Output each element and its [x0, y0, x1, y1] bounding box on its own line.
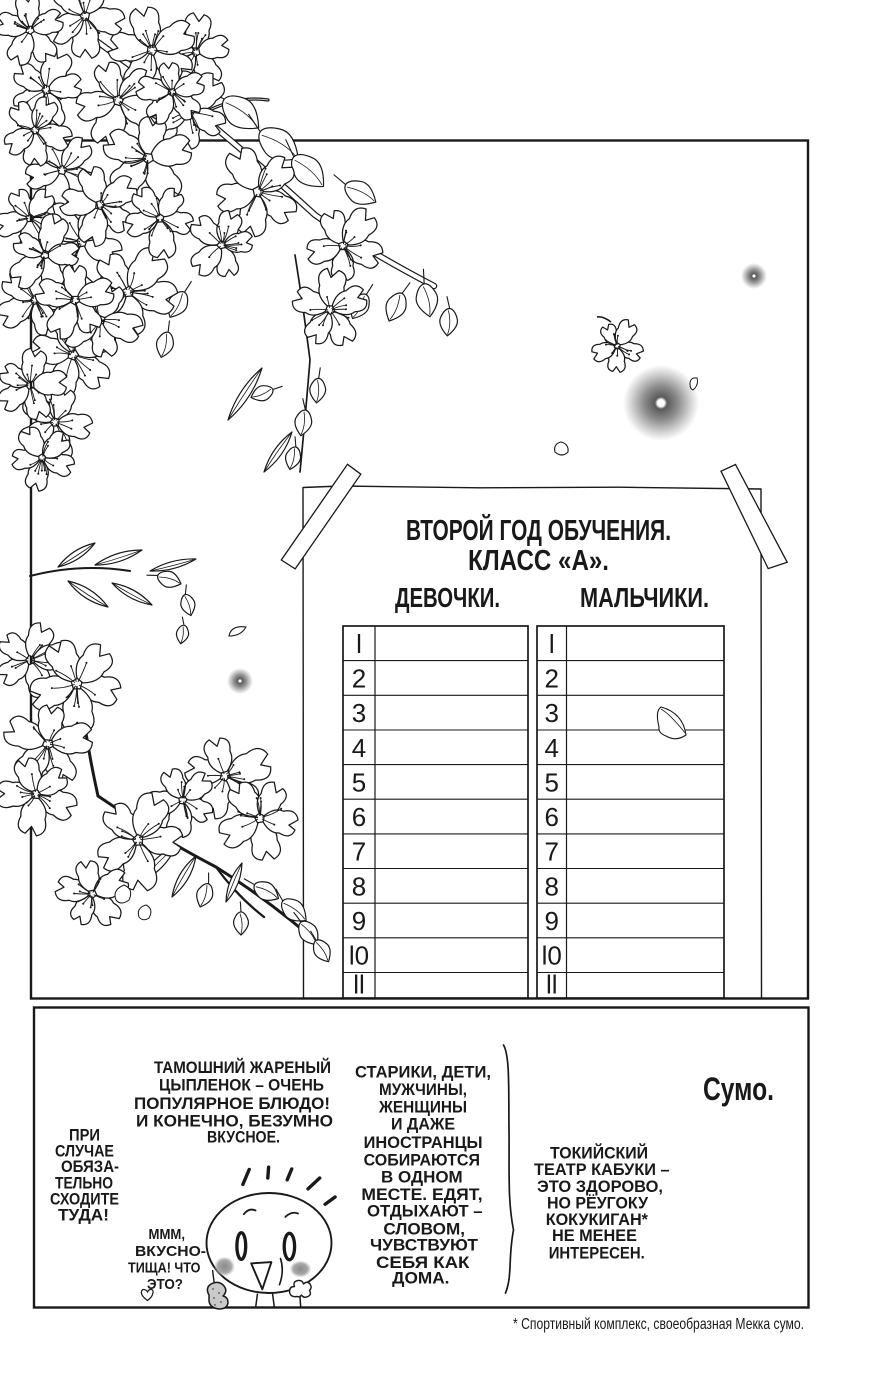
svg-text:l: l: [549, 629, 555, 659]
svg-text:Сумо.: Сумо.: [703, 1071, 774, 1107]
svg-text:6: 6: [352, 802, 366, 832]
svg-text:6: 6: [545, 802, 559, 832]
svg-text:2: 2: [352, 664, 366, 694]
svg-text:СТАРИКИ, ДЕТИ,: СТАРИКИ, ДЕТИ,: [355, 1064, 491, 1082]
svg-text:ТИЩА! ЧТО: ТИЩА! ЧТО: [128, 1260, 201, 1277]
svg-text:4: 4: [352, 733, 366, 763]
svg-text:ТАМОШНИЙ ЖАРЕНЫЙ: ТАМОШНИЙ ЖАРЕНЫЙ: [154, 1058, 331, 1077]
svg-text:ВТОРОЙ ГОД ОБУЧЕНИЯ.: ВТОРОЙ ГОД ОБУЧЕНИЯ.: [406, 513, 671, 547]
svg-text:ЦЫПЛЕНОК – ОЧЕНЬ: ЦЫПЛЕНОК – ОЧЕНЬ: [159, 1077, 324, 1095]
svg-text:ТЕАТР КАБУКИ –: ТЕАТР КАБУКИ –: [534, 1161, 670, 1179]
svg-text:5: 5: [352, 767, 366, 797]
svg-text:ВКУСНО-: ВКУСНО-: [135, 1243, 206, 1260]
svg-text:8: 8: [545, 871, 559, 901]
svg-text:* Спортивный комплекс, своеобр: * Спортивный комплекс, своеобразная Мекк…: [513, 1316, 804, 1333]
svg-text:ЖЕНЩИНЫ: ЖЕНЩИНЫ: [378, 1099, 467, 1117]
svg-text:МУЖЧИНЫ,: МУЖЧИНЫ,: [379, 1081, 467, 1099]
svg-text:ЧУВСТВУЮТ: ЧУВСТВУЮТ: [370, 1237, 478, 1255]
svg-text:9: 9: [545, 906, 559, 936]
svg-text:4: 4: [545, 733, 559, 763]
svg-text:НЕ МЕНЕЕ: НЕ МЕНЕЕ: [552, 1227, 637, 1245]
svg-text:ДОМА.: ДОМА.: [392, 1270, 449, 1288]
svg-text:7: 7: [352, 837, 366, 867]
svg-text:ИНТЕРЕСЕН.: ИНТЕРЕСЕН.: [549, 1244, 645, 1262]
svg-text:ДЕВОЧКИ.: ДЕВОЧКИ.: [395, 582, 500, 613]
svg-text:МАЛЬЧИКИ.: МАЛЬЧИКИ.: [580, 582, 709, 613]
svg-text:И КОНЕЧНО, БЕЗУМНО: И КОНЕЧНО, БЕЗУМНО: [136, 1112, 333, 1130]
svg-text:9: 9: [352, 906, 366, 936]
svg-text:l: l: [356, 629, 362, 659]
svg-text:5: 5: [545, 767, 559, 797]
svg-text:ТОКИЙСКИЙ: ТОКИЙСКИЙ: [550, 1143, 648, 1162]
svg-text:7: 7: [545, 837, 559, 867]
svg-text:МЕСТЕ. ЕДЯТ,: МЕСТЕ. ЕДЯТ,: [361, 1186, 482, 1204]
svg-text:ТЕЛЬНО: ТЕЛЬНО: [55, 1174, 113, 1192]
svg-text:НО РЁУГОКУ: НО РЁУГОКУ: [547, 1194, 649, 1212]
svg-text:ПРИ: ПРИ: [69, 1126, 100, 1144]
svg-text:ОБЯЗА-: ОБЯЗА-: [61, 1158, 119, 1176]
svg-text:СОБИРАЮТСЯ: СОБИРАЮТСЯ: [364, 1152, 480, 1170]
svg-text:В ОДНОМ: В ОДНОМ: [381, 1168, 463, 1186]
svg-text:2: 2: [545, 664, 559, 694]
svg-text:3: 3: [352, 698, 366, 728]
svg-text:ВКУСНОЕ.: ВКУСНОЕ.: [207, 1129, 280, 1147]
svg-text:КЛАСС «А».: КЛАСС «А».: [468, 545, 609, 577]
svg-text:ИНОСТРАНЦЫ: ИНОСТРАНЦЫ: [364, 1134, 483, 1152]
svg-text:ll: ll: [353, 970, 365, 1000]
svg-text:И ДАЖЕ: И ДАЖЕ: [391, 1116, 455, 1134]
svg-text:l0: l0: [542, 941, 562, 971]
svg-text:ПОПУЛЯРНОЕ БЛЮДО!: ПОПУЛЯРНОЕ БЛЮДО!: [134, 1095, 330, 1113]
svg-text:МММ,: МММ,: [149, 1226, 186, 1243]
svg-text:ОТДЫХАЮТ –: ОТДЫХАЮТ –: [367, 1202, 483, 1220]
svg-text:l0: l0: [349, 941, 369, 971]
svg-text:ТУДА!: ТУДА!: [58, 1207, 109, 1225]
svg-text:ll: ll: [546, 970, 558, 1000]
svg-text:8: 8: [352, 871, 366, 901]
svg-text:3: 3: [545, 698, 559, 728]
